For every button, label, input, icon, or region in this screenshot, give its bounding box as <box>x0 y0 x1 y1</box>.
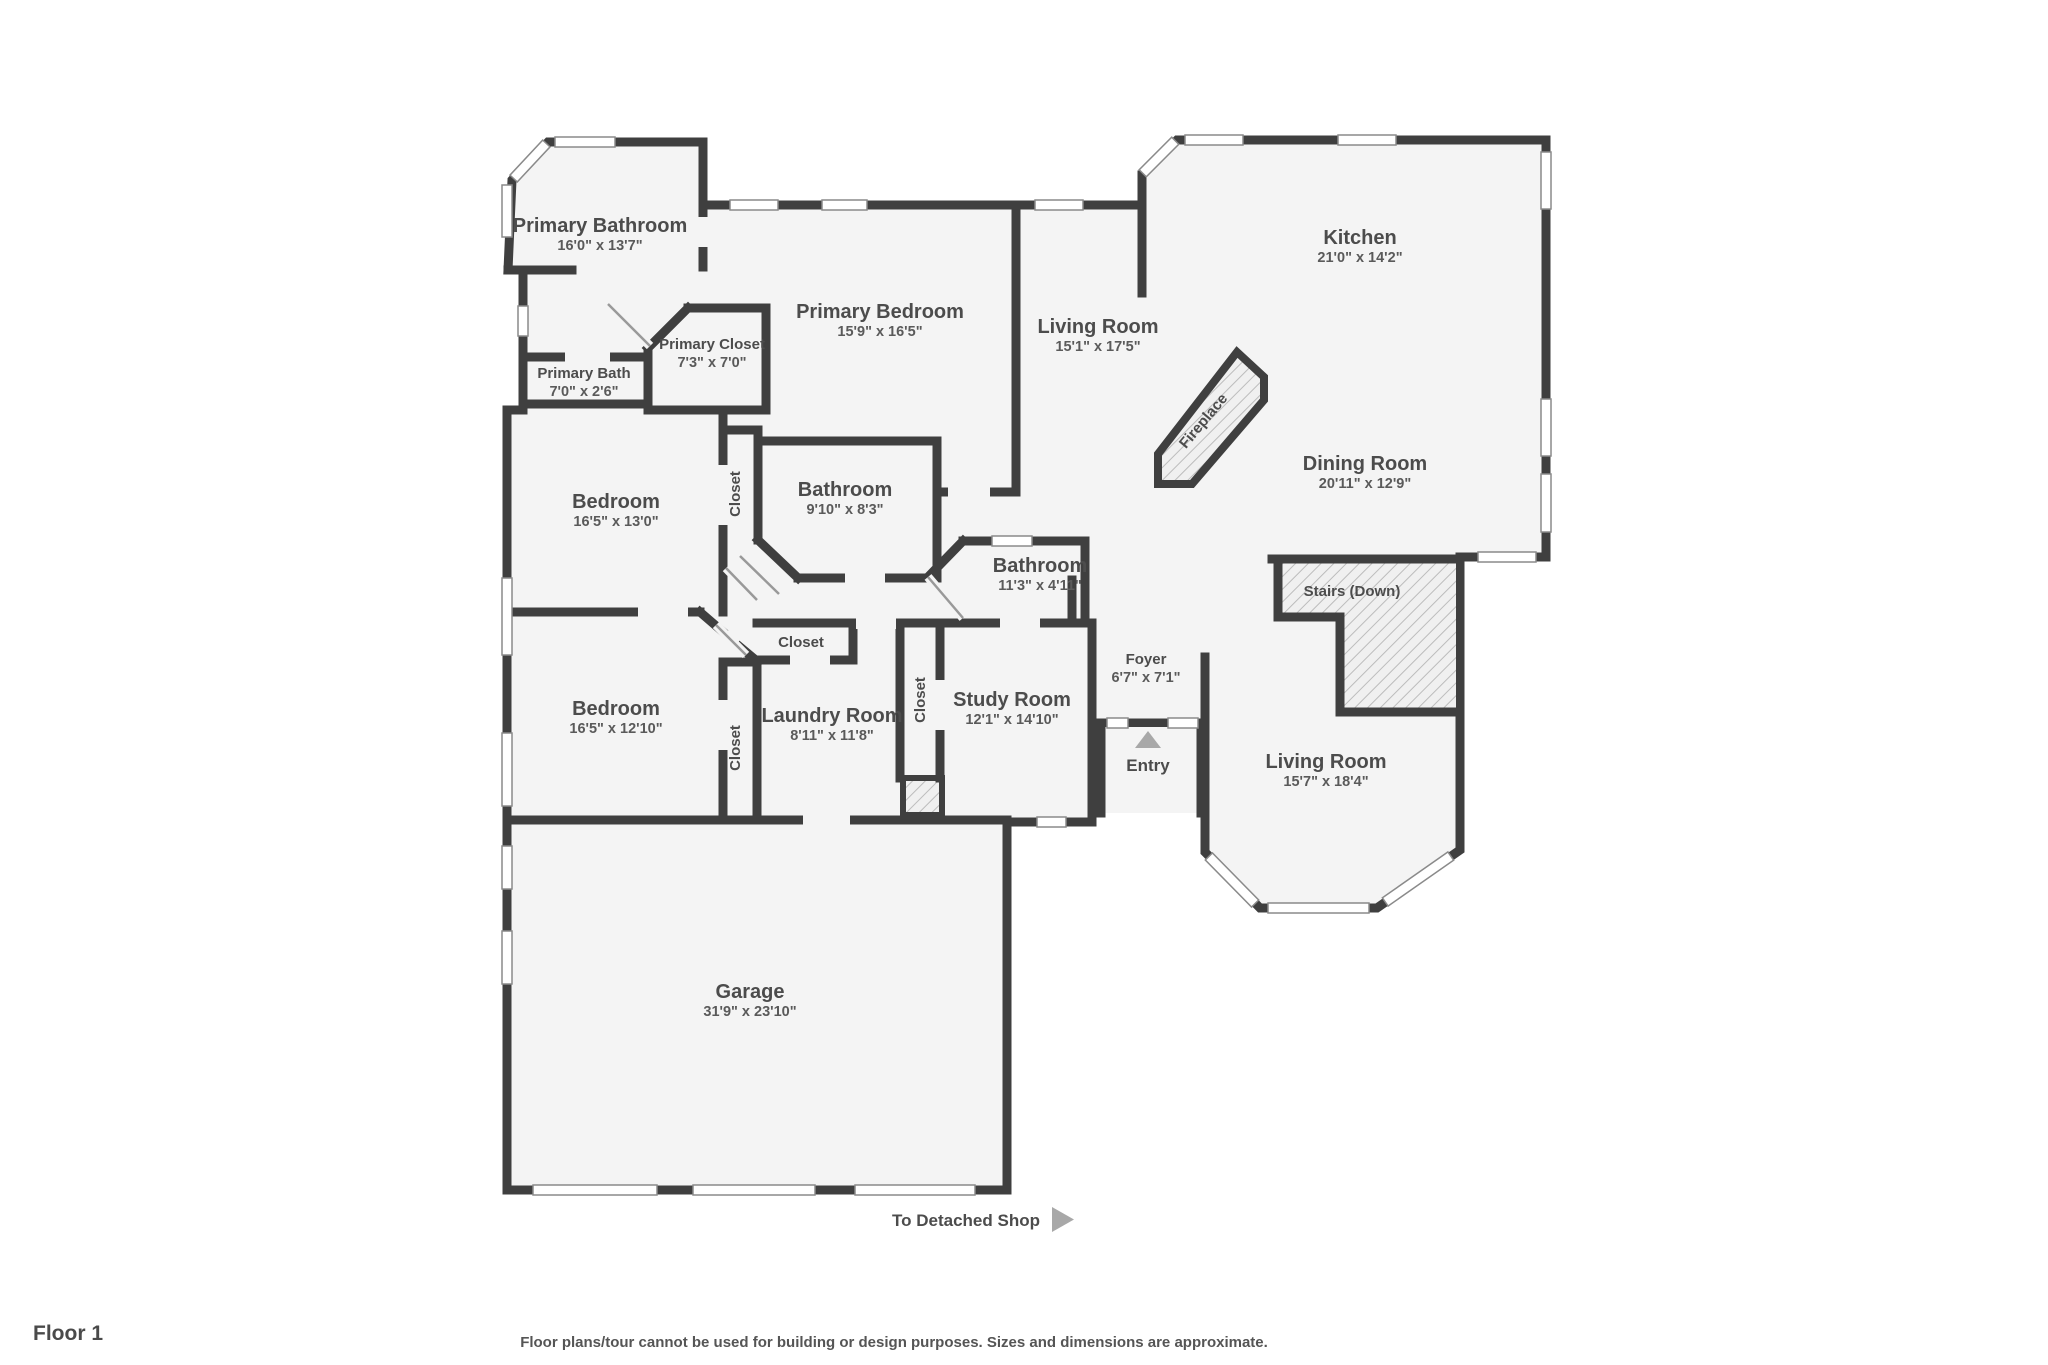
room-label: Bedroom <box>572 698 660 720</box>
room-label: Primary Bathroom <box>513 215 688 237</box>
room-label: Closet <box>912 677 929 723</box>
detached-shop-link[interactable]: To Detached Shop <box>892 1207 1074 1232</box>
room-dims: 8'11" x 11'8" <box>790 728 874 744</box>
room-label: Bathroom <box>798 479 892 501</box>
room-dims: 16'5" x 12'10" <box>569 721 662 737</box>
room-dims: 6'7" x 7'1" <box>1111 670 1180 686</box>
room-label: Closet <box>778 634 824 651</box>
room-label: Primary Bedroom <box>796 301 964 323</box>
room-label: Bathroom <box>993 555 1087 577</box>
detached-shop-arrow-icon[interactable] <box>1052 1207 1074 1232</box>
room-label: Primary Bath <box>537 365 630 382</box>
room-dims: 15'1" x 17'5" <box>1055 339 1140 355</box>
room-label: Study Room <box>953 689 1071 711</box>
stairs-label: Stairs (Down) <box>1304 583 1401 600</box>
room-dims: 9'10" x 8'3" <box>806 502 883 518</box>
floorplan-svg: Fireplace Stairs (Down) Entry To Detache… <box>0 0 2048 1365</box>
room-label: Dining Room <box>1303 453 1427 475</box>
room-label: Primary Closet <box>659 336 765 353</box>
floor-label: Floor 1 <box>33 1322 103 1346</box>
room-dims: 7'3" x 7'0" <box>677 355 746 371</box>
room-label: Closet <box>727 725 744 771</box>
room-label: Closet <box>727 471 744 517</box>
room-dims: 12'1" x 14'10" <box>965 712 1058 728</box>
room-dims: 31'9" x 23'10" <box>703 1004 796 1020</box>
room-label: Living Room <box>1037 316 1158 338</box>
entry-label: Entry <box>1126 756 1170 775</box>
room-dims: 15'7" x 18'4" <box>1283 774 1368 790</box>
room-label: Laundry Room <box>761 705 902 727</box>
room-label: Garage <box>716 981 785 1003</box>
room-dims: 16'0" x 13'7" <box>557 238 642 254</box>
floorplan-page: Fireplace Stairs (Down) Entry To Detache… <box>0 0 2048 1365</box>
chimney-block <box>903 778 942 815</box>
room-label: Bedroom <box>572 491 660 513</box>
room-label: Kitchen <box>1323 227 1396 249</box>
room-label: Living Room <box>1265 751 1386 773</box>
room-dims: 20'11" x 12'9" <box>1319 476 1411 492</box>
room-dims: 16'5" x 13'0" <box>573 514 658 530</box>
room-dims: 15'9" x 16'5" <box>837 324 922 340</box>
room-label: Foyer <box>1126 651 1167 668</box>
room-dims: 7'0" x 2'6" <box>549 384 618 400</box>
disclaimer-text: Floor plans/tour cannot be used for buil… <box>520 1334 1268 1351</box>
detached-shop-label[interactable]: To Detached Shop <box>892 1211 1040 1230</box>
room-dims: 21'0" x 14'2" <box>1317 250 1402 266</box>
room-dims: 11'3" x 4'11" <box>998 578 1082 594</box>
